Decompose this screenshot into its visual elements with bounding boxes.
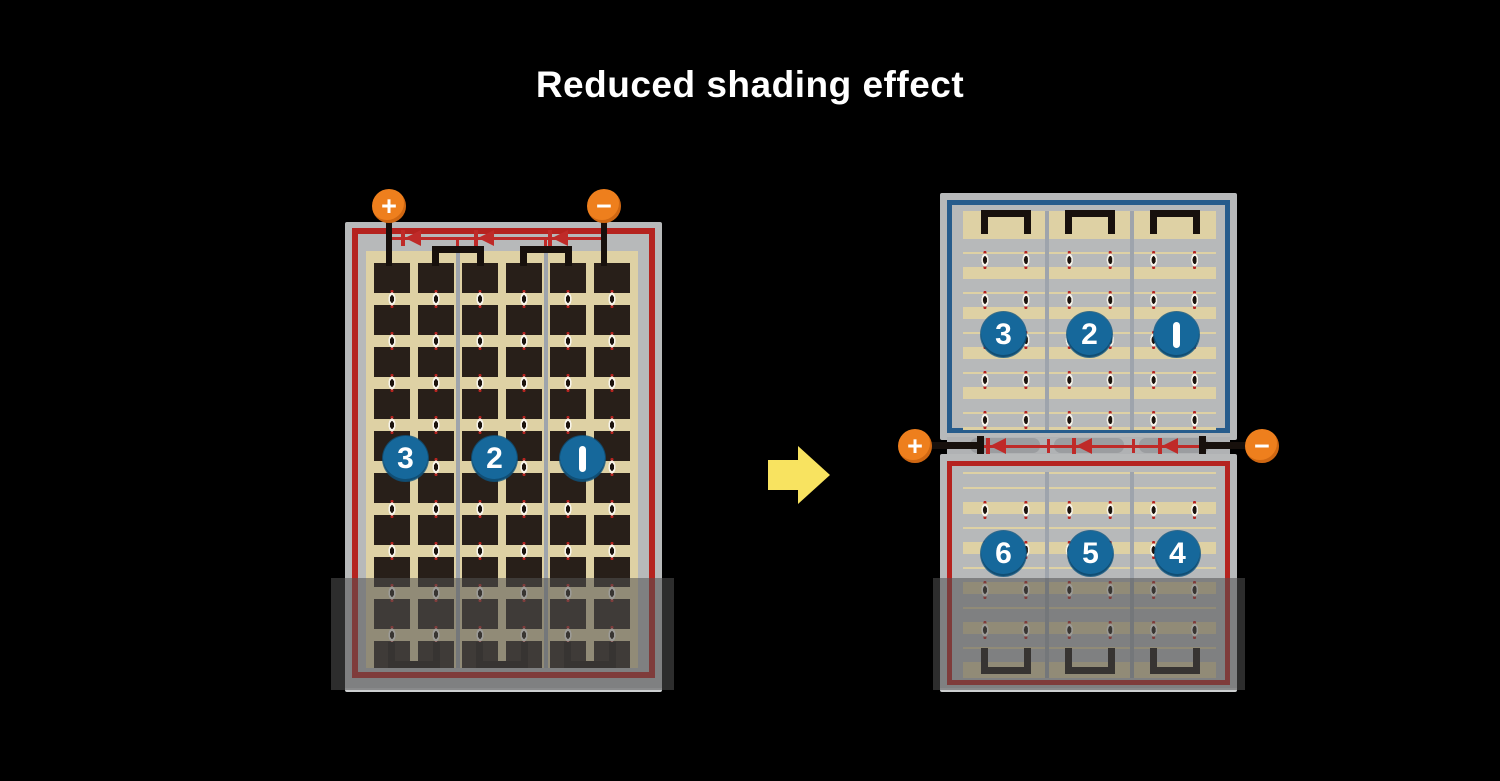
bypass-diode-icon — [405, 230, 421, 246]
plus-icon: + — [381, 193, 397, 220]
string-number-badge: 2 — [472, 436, 517, 481]
diagram-canvas: Reduced shading effect + − 3 2 — [0, 0, 1500, 781]
bypass-diode-icon — [990, 438, 1006, 454]
top-string-jumper — [1065, 210, 1115, 234]
string-number-badge: 3 — [981, 312, 1026, 357]
string-number-badge: 3 — [383, 436, 428, 481]
negative-terminal: − — [1245, 429, 1279, 463]
bypass-diode-icon — [552, 230, 568, 246]
positive-terminal: + — [372, 189, 406, 223]
top-string-divider-1 — [1045, 211, 1049, 430]
top-string-divider-2 — [1130, 211, 1134, 430]
string-number-badge: 6 — [981, 531, 1026, 576]
bus-tap-tick — [1132, 439, 1135, 453]
top-string-jumper — [520, 246, 572, 266]
string-number-badge: 4 — [1155, 531, 1200, 576]
shading-overlay — [933, 578, 1245, 690]
top-string-jumper — [432, 246, 484, 266]
positive-terminal: + — [898, 429, 932, 463]
bus-tap-tick — [1047, 439, 1050, 453]
string-number-badge: 5 — [1068, 531, 1113, 576]
minus-icon: − — [1254, 433, 1270, 460]
string-number-badge — [560, 436, 605, 481]
minus-icon: − — [596, 193, 612, 220]
diagram-title: Reduced shading effect — [0, 64, 1500, 106]
arrow-head-icon — [798, 446, 830, 504]
string-number-badge: 2 — [1067, 312, 1112, 357]
arrow-shaft — [768, 460, 798, 490]
bypass-diode-icon — [1076, 438, 1092, 454]
positive-terminal-wire — [930, 442, 979, 449]
positive-terminal-wire — [386, 220, 392, 266]
top-string-jumper — [1150, 210, 1200, 234]
bypass-diode-icon — [478, 230, 494, 246]
bypass-diode-icon — [1162, 438, 1178, 454]
left-diode-bus — [389, 237, 604, 240]
top-string-jumper — [981, 210, 1031, 234]
negative-terminal-wire — [601, 220, 607, 266]
plus-icon: + — [907, 433, 923, 460]
shading-overlay — [331, 578, 674, 690]
string-number-badge — [1154, 312, 1199, 357]
negative-terminal: − — [587, 189, 621, 223]
